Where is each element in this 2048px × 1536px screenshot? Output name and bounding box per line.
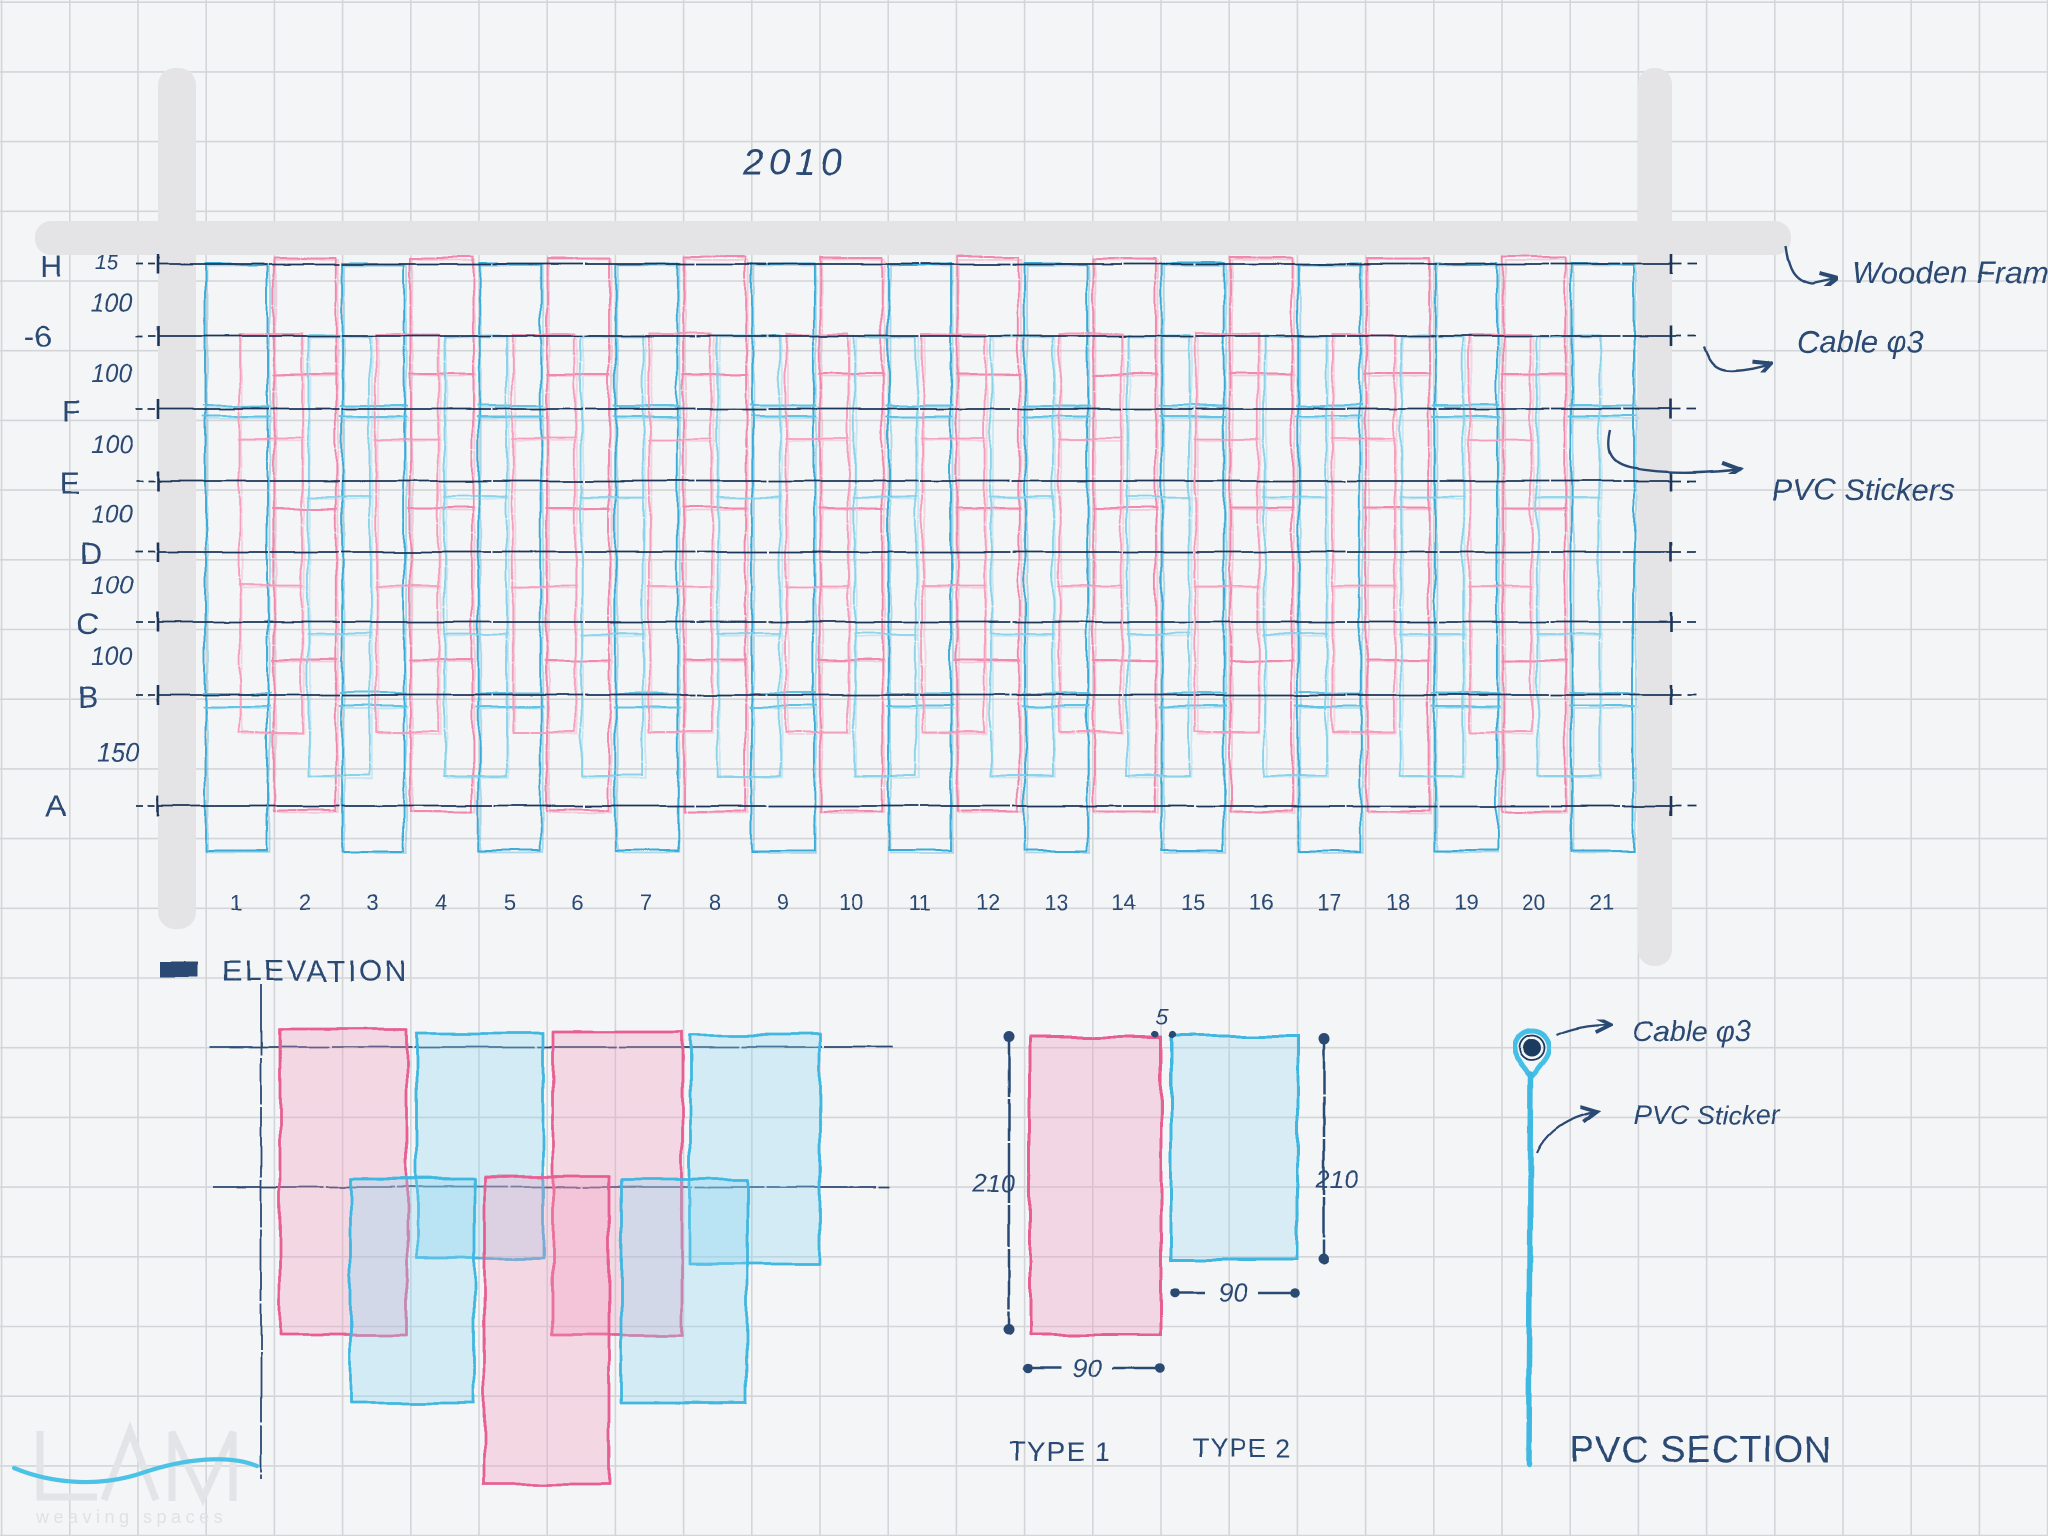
- svg-text:90: 90: [1219, 1277, 1248, 1307]
- svg-text:-6: -6: [24, 319, 52, 354]
- svg-text:10: 10: [839, 890, 863, 915]
- svg-text:Wooden Frame: Wooden Frame: [1852, 255, 2048, 290]
- svg-text:15: 15: [1181, 890, 1205, 915]
- svg-text:210: 210: [972, 1170, 1015, 1198]
- svg-text:PVC SECTION: PVC SECTION: [1570, 1429, 1832, 1470]
- svg-text:F: F: [63, 393, 82, 428]
- svg-text:Cable φ3: Cable φ3: [1797, 324, 1924, 359]
- svg-text:9: 9: [777, 890, 789, 915]
- svg-text:2: 2: [299, 890, 311, 915]
- svg-text:4: 4: [435, 890, 447, 915]
- svg-text:A: A: [46, 789, 67, 824]
- svg-text:ELEVATION: ELEVATION: [222, 955, 408, 988]
- svg-text:16: 16: [1249, 890, 1273, 915]
- svg-text:100: 100: [91, 501, 133, 529]
- svg-text:PVC Stickers: PVC Stickers: [1772, 472, 1955, 507]
- svg-text:6: 6: [572, 890, 584, 915]
- svg-text:PVC Sticker: PVC Sticker: [1634, 1100, 1781, 1130]
- svg-text:150: 150: [97, 739, 139, 767]
- svg-text:14: 14: [1112, 890, 1136, 915]
- svg-text:Cable φ3: Cable φ3: [1632, 1016, 1751, 1048]
- svg-text:E: E: [60, 465, 81, 500]
- svg-text:18: 18: [1386, 890, 1410, 915]
- svg-text:100: 100: [91, 289, 133, 317]
- svg-text:13: 13: [1044, 890, 1068, 915]
- svg-text:100: 100: [91, 360, 133, 388]
- svg-text:TYPE 2: TYPE 2: [1192, 1433, 1291, 1463]
- svg-text:11: 11: [909, 890, 932, 915]
- svg-text:20: 20: [1522, 890, 1546, 915]
- svg-text:1: 1: [230, 890, 242, 915]
- svg-text:3: 3: [367, 890, 379, 915]
- svg-text:90: 90: [1073, 1353, 1102, 1383]
- svg-text:8: 8: [709, 890, 721, 915]
- svg-text:C: C: [77, 606, 99, 641]
- svg-text:21: 21: [1590, 890, 1614, 915]
- svg-text:D: D: [80, 536, 102, 571]
- svg-text:TYPE 1: TYPE 1: [1009, 1436, 1111, 1467]
- svg-text:17: 17: [1317, 890, 1341, 915]
- svg-text:15: 15: [94, 251, 118, 274]
- svg-text:100: 100: [91, 572, 133, 600]
- svg-text:weaving spaces: weaving spaces: [35, 1507, 227, 1527]
- svg-text:100: 100: [91, 431, 133, 459]
- svg-text:19: 19: [1454, 890, 1478, 915]
- svg-text:12: 12: [976, 890, 1000, 915]
- svg-text:210: 210: [1315, 1166, 1358, 1194]
- svg-text:7: 7: [640, 890, 652, 915]
- svg-text:5: 5: [1156, 1004, 1169, 1029]
- svg-text:100: 100: [91, 643, 133, 671]
- svg-text:B: B: [78, 679, 99, 714]
- svg-text:2010: 2010: [742, 142, 848, 184]
- svg-text:H: H: [40, 249, 62, 284]
- svg-text:5: 5: [504, 890, 516, 915]
